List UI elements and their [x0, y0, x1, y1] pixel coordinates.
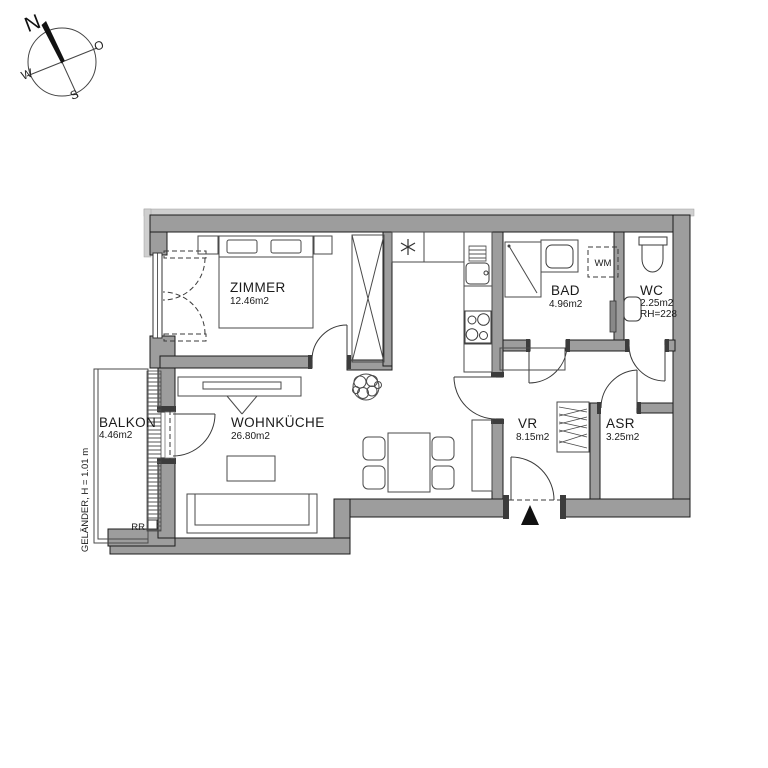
fridge-snowflake-icon	[401, 239, 415, 255]
wc-basin	[624, 297, 641, 321]
balcony-door	[173, 414, 215, 456]
asr-door	[601, 370, 637, 408]
vr-area: 8.15m2	[516, 432, 550, 443]
wall-top	[150, 215, 690, 232]
shower	[505, 242, 541, 297]
wall-bottom-middle	[340, 499, 508, 517]
zimmer-label: ZIMMER	[230, 280, 286, 295]
zimmer-furniture	[198, 235, 384, 362]
chair	[432, 466, 454, 489]
wardrobe	[352, 235, 384, 362]
kitchen	[392, 232, 492, 372]
wc-room-height: RH=228	[640, 309, 677, 320]
balkon-area: 4.46m2	[99, 430, 133, 441]
tv-direction-mark	[227, 396, 242, 414]
vr-label: VR	[518, 416, 538, 431]
pillow	[271, 240, 301, 253]
tv-sideboard	[178, 377, 301, 414]
floor-plan-canvas: N O W S	[0, 0, 768, 768]
bad-door	[529, 345, 567, 383]
wohnkueche-vr-door	[454, 377, 496, 419]
dining-set	[363, 433, 454, 492]
wall-asr-top	[637, 403, 673, 413]
wohnkueche-label: WOHNKÜCHE	[231, 415, 325, 430]
balkon-label: BALKON	[99, 415, 156, 430]
toilet	[639, 237, 667, 272]
kitchen-counter-top	[392, 232, 464, 262]
compass-south-label: S	[68, 87, 81, 103]
compass-needle-icon	[42, 21, 65, 64]
entrance-door	[509, 457, 561, 525]
wc-label: WC	[640, 283, 663, 298]
wc-door	[629, 345, 665, 381]
zimmer-door	[312, 325, 347, 360]
sofa	[187, 494, 317, 533]
washing-machine-label: WM	[595, 258, 612, 269]
balcony-grating	[147, 371, 161, 531]
wall-step	[334, 499, 350, 544]
wall-asr-left	[590, 403, 600, 499]
balcony-railing	[94, 369, 148, 543]
wall-zimmer-bottom	[160, 356, 312, 368]
wall-bottom-right	[562, 499, 690, 517]
compass-rose: N O W S	[19, 10, 106, 103]
wall-kitchen-vr-upper	[492, 232, 503, 377]
bathroom-vanity	[541, 240, 578, 272]
asr-area: 3.25m2	[606, 432, 640, 443]
wall-kitchen-vr-lower	[492, 419, 503, 499]
wall-right	[673, 215, 690, 517]
bad-area: 4.96m2	[549, 299, 583, 310]
dining-table	[388, 433, 430, 492]
wohnkueche-area: 26.80m2	[231, 431, 270, 442]
coat-rack	[557, 402, 589, 452]
zimmer-area: 12.46m2	[230, 296, 269, 307]
wall-bad-bottom-right	[566, 340, 629, 351]
chair	[432, 437, 454, 460]
entrance-arrow-icon	[521, 505, 539, 525]
coffee-table	[227, 456, 275, 481]
nightstand	[314, 236, 332, 254]
railing-label: GELÄNDER, H = 1.01 m	[80, 448, 91, 552]
wc-area: 2.25m2	[640, 298, 674, 309]
cooktop	[465, 311, 491, 343]
bad-label: BAD	[551, 283, 580, 298]
asr-label: ASR	[606, 416, 635, 431]
kitchen-sink	[466, 246, 489, 284]
wall-bad-bottom-left	[503, 340, 530, 351]
pillow	[227, 240, 257, 253]
rain-pipe	[148, 520, 157, 529]
chair	[363, 466, 385, 489]
floor-plan-page: N O W S	[0, 0, 768, 768]
rain-pipe-label: RR	[131, 522, 145, 533]
chair	[363, 437, 385, 460]
towel-radiator	[610, 301, 616, 332]
hall-sideboard	[472, 420, 492, 491]
balcony	[94, 369, 161, 543]
compass-north-label: N	[21, 10, 43, 37]
plant	[353, 374, 382, 400]
